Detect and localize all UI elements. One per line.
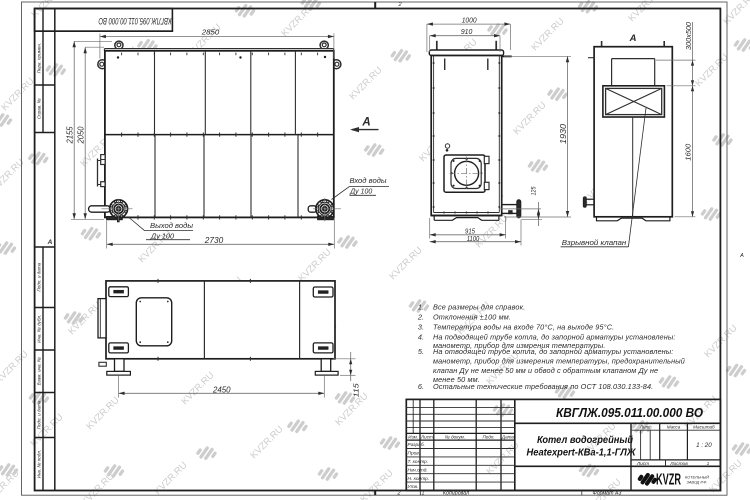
svg-text:KVZR.RU: KVZR.RU: [511, 100, 548, 137]
svg-text:Пров.: Пров.: [408, 451, 421, 457]
svg-text:Все размеры для справок.: Все размеры для справок.: [433, 303, 525, 312]
svg-text:Перв. примен.: Перв. примен.: [37, 43, 42, 74]
svg-text:А: А: [739, 253, 744, 259]
svg-text:А: А: [361, 117, 370, 129]
svg-text:Котел водогрейный: Котел водогрейный: [537, 434, 634, 446]
svg-text:2: 2: [396, 491, 400, 497]
svg-text:Взам. инв. №: Взам. инв. №: [37, 357, 42, 385]
svg-text:KVZR.RU: KVZR.RU: [484, 440, 521, 477]
svg-text:1 : 20: 1 : 20: [696, 442, 712, 449]
svg-text:1600: 1600: [686, 144, 693, 161]
svg-text:Вход воды: Вход воды: [350, 176, 387, 185]
svg-text:2: 2: [397, 2, 401, 8]
svg-text:Нач.отд.: Нач.отд.: [408, 467, 428, 473]
svg-text:910: 910: [461, 29, 473, 36]
svg-text:КОТЕЛЬНЫЙ: КОТЕЛЬНЫЙ: [685, 476, 709, 480]
svg-text:125: 125: [530, 186, 537, 195]
svg-text:KVZR.RU: KVZR.RU: [693, 52, 730, 89]
svg-text:Ду 100: Ду 100: [150, 232, 175, 241]
svg-text:КВГЛЖ.095.011.00.000 ВО: КВГЛЖ.095.011.00.000 ВО: [99, 16, 172, 26]
svg-text:№ докум.: № докум.: [445, 434, 465, 439]
svg-text:KVZR.RU: KVZR.RU: [721, 0, 750, 27]
svg-text:А: А: [629, 33, 637, 44]
svg-text:Выход воды: Выход воды: [150, 221, 193, 230]
svg-text:KVZR.RU: KVZR.RU: [0, 349, 31, 386]
svg-text:Лист: Лист: [420, 434, 433, 439]
svg-text:Остальные технические требован: Остальные технические требования по ОСТ …: [433, 382, 653, 391]
svg-text:2850: 2850: [201, 28, 220, 37]
svg-text:Изм.: Изм.: [408, 434, 418, 439]
svg-text:Подп. и дата: Подп. и дата: [37, 262, 42, 291]
svg-text:915: 915: [465, 229, 475, 236]
svg-text:Формат А3: Формат А3: [593, 491, 622, 497]
svg-text:Подп. и дата: Подп. и дата: [37, 400, 42, 429]
svg-text:Дата: Дата: [501, 434, 515, 439]
svg-text:На отводящей трубе котла, до з: На отводящей трубе котла, до запорной ар…: [433, 347, 673, 356]
svg-text:3.: 3.: [418, 323, 424, 332]
svg-text:2.: 2.: [417, 313, 424, 322]
svg-text:Утв.: Утв.: [408, 484, 419, 490]
svg-text:Разраб.: Разраб.: [408, 442, 425, 448]
svg-text:Копировал: Копировал: [443, 491, 469, 497]
svg-text:KVZR.RU: KVZR.RU: [626, 0, 663, 24]
svg-text:KVZR: KVZR: [656, 472, 681, 489]
svg-text:КВГЛЖ.095.011.00.000 ВО: КВГЛЖ.095.011.00.000 ВО: [556, 406, 703, 420]
svg-text:4.: 4.: [418, 333, 424, 342]
svg-text:Инв. № дубл.: Инв. № дубл.: [37, 315, 42, 343]
svg-text:KVZR.RU: KVZR.RU: [84, 395, 121, 432]
svg-text:Инв. № подл.: Инв. № подл.: [37, 450, 42, 479]
svg-text:Лит.: Лит.: [639, 425, 651, 430]
svg-text:KVZR.RU: KVZR.RU: [707, 458, 744, 495]
svg-text:KVZR.RU: KVZR.RU: [179, 370, 216, 407]
svg-text:1100: 1100: [467, 236, 480, 243]
svg-text:KVZR.RU: KVZR.RU: [387, 245, 424, 282]
svg-text:А: А: [47, 239, 53, 246]
svg-text:6.: 6.: [418, 382, 424, 391]
svg-text:ЗАВОД Р.Ф.: ЗАВОД Р.Ф.: [687, 481, 708, 485]
svg-text:Ду 100: Ду 100: [349, 187, 373, 196]
svg-text:KVZR.RU: KVZR.RU: [347, 65, 384, 102]
svg-text:2050: 2050: [77, 126, 86, 144]
svg-text:KVZR.RU: KVZR.RU: [296, 247, 333, 284]
svg-text:1: 1: [707, 461, 710, 467]
svg-text:2155: 2155: [66, 126, 75, 144]
svg-text:Н. контр.: Н. контр.: [408, 476, 430, 482]
svg-text:Листов: Листов: [669, 461, 688, 467]
svg-text:Лист: Лист: [636, 461, 649, 467]
svg-text:2730: 2730: [204, 236, 224, 245]
svg-text:Масса: Масса: [667, 425, 681, 430]
svg-text:1: 1: [422, 491, 425, 497]
svg-text:2450: 2450: [212, 385, 231, 394]
svg-text:Отклонения ±100 мм.: Отклонения ±100 мм.: [433, 313, 511, 322]
svg-text:Т. контр.: Т. контр.: [408, 459, 429, 465]
svg-text:1.: 1.: [418, 303, 424, 312]
svg-text:1930: 1930: [559, 123, 568, 144]
svg-text:Масштаб: Масштаб: [693, 425, 715, 430]
svg-text:Подп.: Подп.: [482, 434, 494, 439]
svg-text:5.: 5.: [418, 347, 424, 356]
svg-text:Взрывной клапан: Взрывной клапан: [562, 238, 627, 247]
svg-text:KVZR.RU: KVZR.RU: [0, 157, 27, 194]
svg-text:Heatexpert-КВа-1,1-ГЛЖ: Heatexpert-КВа-1,1-ГЛЖ: [527, 447, 637, 459]
svg-text:манометр, прибор для измерения: манометр, прибор для измерения температу…: [433, 357, 685, 366]
svg-text:KVZR.RU: KVZR.RU: [529, 16, 566, 53]
svg-text:Температура воды на входе 70°С: Температура воды на входе 70°С, на выход…: [433, 323, 614, 332]
svg-text:клапан Ду не менее 50 мм и обв: клапан Ду не менее 50 мм и обвод с обрат…: [433, 366, 658, 375]
svg-text:300х500: 300х500: [686, 22, 693, 50]
svg-text:KVZR.RU: KVZR.RU: [0, 76, 37, 113]
svg-text:KVZR.RU: KVZR.RU: [248, 424, 285, 461]
svg-text:1000: 1000: [462, 17, 477, 24]
svg-text:Справ. №: Справ. №: [37, 98, 42, 119]
svg-text:115: 115: [352, 382, 361, 397]
svg-text:KVZR.RU: KVZR.RU: [152, 460, 189, 497]
